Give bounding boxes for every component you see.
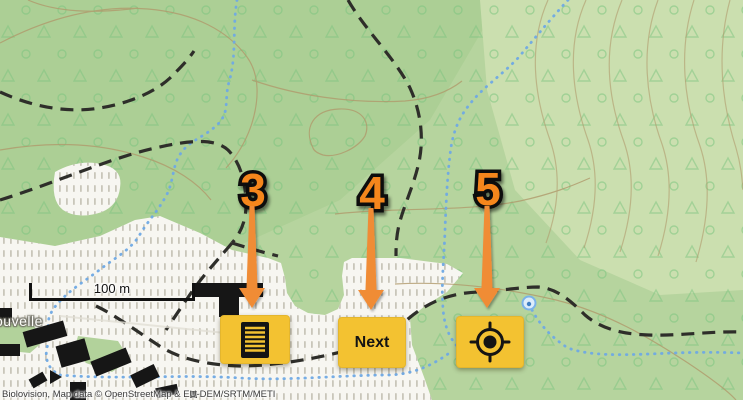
locate-button[interactable] (456, 316, 524, 368)
place-name-label: ouvelle (0, 313, 43, 329)
scale-bar-label: 100 m (32, 281, 192, 296)
next-button-label: Next (355, 334, 390, 352)
crosshair-locate-icon (468, 320, 512, 364)
map-app-screen: 100 m ouvelle Biolovision, Map data © Op… (0, 0, 743, 400)
map-attribution: Biolovision, Map data © OpenStreetMap & … (2, 389, 275, 400)
map-scale-bar: 100 m (29, 283, 195, 301)
next-button[interactable]: Next (338, 317, 406, 368)
list-icon (238, 319, 272, 361)
spring-symbol (523, 297, 536, 310)
list-button[interactable] (220, 315, 290, 364)
